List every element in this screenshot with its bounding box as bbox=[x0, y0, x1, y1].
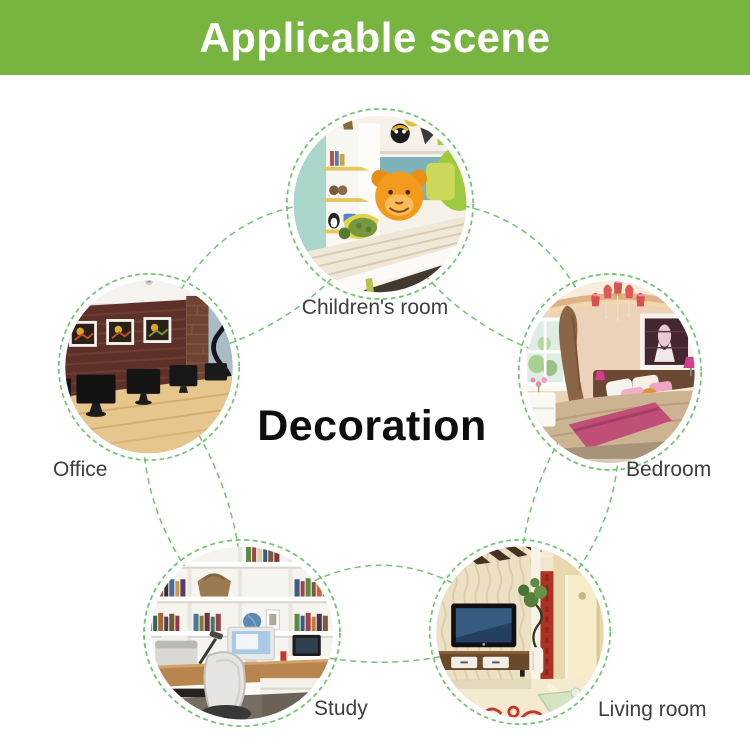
scene-node-living-room bbox=[427, 537, 613, 727]
living-room-photo bbox=[427, 537, 613, 727]
bedroom-photo bbox=[516, 271, 704, 473]
label-study: Study bbox=[314, 697, 368, 720]
children-room-photo bbox=[284, 106, 476, 302]
label-children-room: Children's room bbox=[302, 296, 448, 319]
scene-node-study bbox=[141, 537, 343, 729]
label-living-room: Living room bbox=[598, 698, 707, 721]
scene-node-children-room bbox=[284, 106, 476, 302]
office-photo bbox=[56, 271, 242, 463]
study-photo bbox=[141, 537, 343, 729]
label-bedroom: Bedroom bbox=[626, 458, 711, 481]
center-label: Decoration bbox=[257, 402, 487, 451]
scene-node-bedroom bbox=[516, 271, 704, 473]
scene-node-office bbox=[56, 271, 242, 463]
label-office: Office bbox=[53, 458, 107, 481]
promo-image: Applicable scene Decoration bbox=[0, 0, 750, 750]
